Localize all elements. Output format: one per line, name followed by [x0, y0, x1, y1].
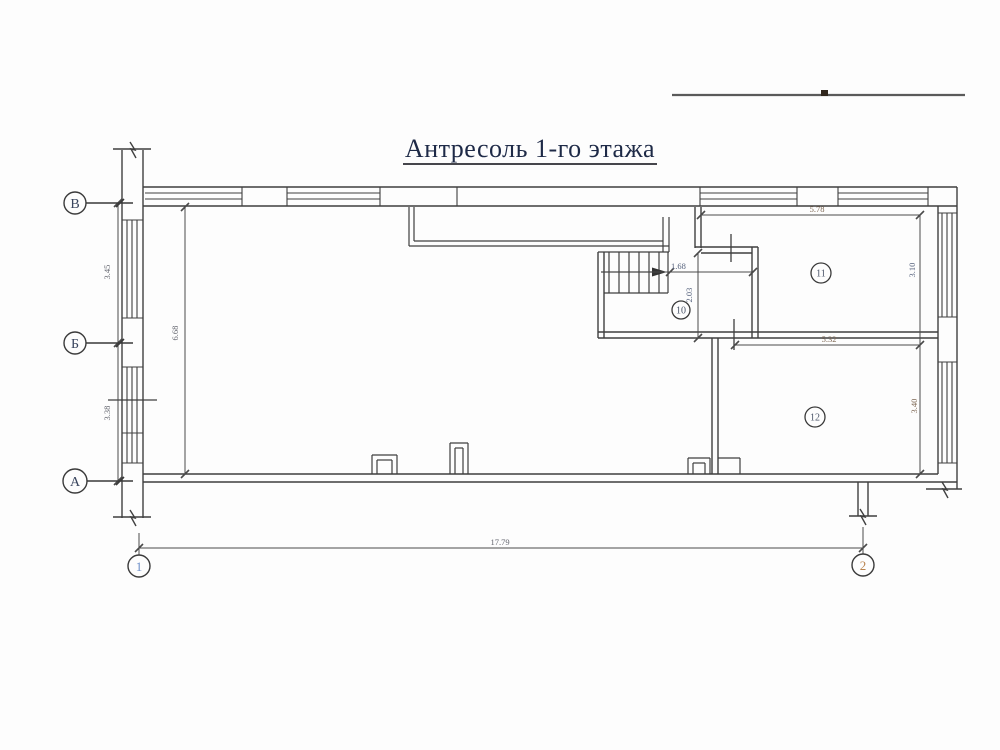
axis-label-1: 1 [136, 559, 143, 574]
scanned-floor-plan-page: Антресоль 1-го этажа [0, 0, 1000, 750]
dim-hall-depth: 6.68 [170, 326, 180, 341]
page-title: Антресоль 1-го этажа [405, 134, 655, 163]
axis-label-v: В [70, 197, 79, 212]
drawing-title: Антресоль 1-го этажа [403, 134, 657, 164]
room-10-number: 10 [676, 306, 686, 317]
dim-mid-width: 5.32 [822, 334, 837, 344]
partitions [598, 207, 938, 474]
wall-break-bottom [113, 510, 151, 526]
ink-dot [821, 90, 828, 96]
dimension-lines [114, 199, 924, 556]
dim-right-upper: 3.10 [907, 263, 917, 278]
dim-left-upper: 3.45 [102, 265, 112, 280]
stairs [598, 252, 669, 338]
dim-stair-depth: 2.03 [684, 288, 694, 303]
door-jamb-block [718, 458, 740, 474]
top-window-glazing [145, 193, 928, 199]
opening-edge [409, 207, 669, 252]
axis-label-2: 2 [860, 558, 867, 573]
dim-right-lower: 3.40 [909, 399, 919, 414]
room-11-number: 11 [816, 269, 826, 280]
dimension-labels: 3.45 3.38 6.68 1.68 2.03 5.78 3.10 5.32 … [102, 204, 919, 547]
jamb-element-3 [688, 458, 710, 474]
axis-label-a: А [70, 475, 81, 490]
left-wall [108, 142, 157, 526]
floor-plan-drawing: Антресоль 1-го этажа [0, 0, 1000, 750]
top-wall-piers [242, 187, 928, 206]
right-wall [926, 187, 962, 498]
wall-break-top [113, 142, 151, 158]
room-12-number: 12 [810, 413, 820, 424]
bottom-wall [143, 443, 957, 525]
dim-left-lower: 3.38 [102, 406, 112, 421]
jamb-element-1 [372, 455, 397, 474]
jamb-element-2 [450, 443, 468, 474]
right-window-glazing [942, 213, 952, 463]
dim-overall-width: 17.79 [490, 537, 509, 547]
left-window-glazing [127, 220, 137, 463]
dim-top-width: 5.78 [810, 204, 825, 214]
axis-label-b: Б [71, 337, 79, 352]
column-axis-markers: 1 2 [128, 554, 874, 577]
bottom-wall-stub [849, 482, 877, 525]
dim-stair-width: 1.68 [671, 261, 686, 271]
top-wall [143, 187, 957, 206]
top-right-rule [672, 90, 965, 96]
